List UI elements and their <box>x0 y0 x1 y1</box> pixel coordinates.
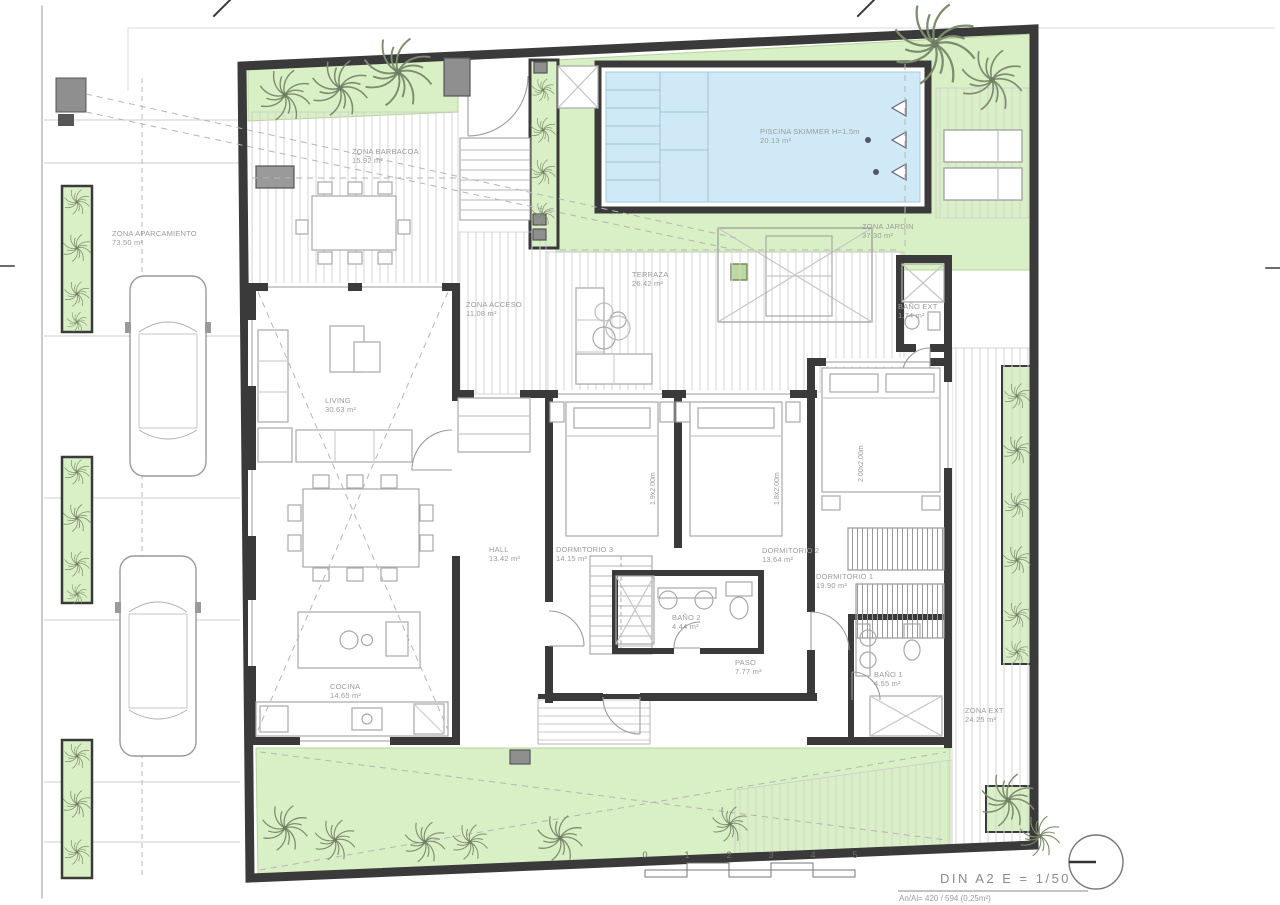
room-label-zona-ext: ZONA EXT 24.25 m² <box>965 706 1004 724</box>
exterior-bathroom-fixtures <box>902 264 944 330</box>
room-area: 26.42 m² <box>632 279 668 288</box>
room-area: 14.15 m² <box>556 554 613 563</box>
room-area: 4.55 m² <box>874 679 903 688</box>
room-name: PASO <box>735 658 762 667</box>
hall-closet <box>458 398 530 452</box>
room-area: 1.74 m² <box>898 311 938 320</box>
room-name: LIVING <box>325 396 356 405</box>
room-label-terraza: TERRAZA 26.42 m² <box>632 270 668 288</box>
left-planter <box>62 740 92 878</box>
room-name: DORMITORIO 1 <box>816 572 873 581</box>
room-label-barbacoa: ZONA BARBACOA 15.92 m² <box>352 147 419 165</box>
bed-dimension-label: 1.9x2.00m <box>650 472 657 505</box>
bed-dormitorio-2 <box>676 402 800 536</box>
room-name: COCINA <box>330 682 361 691</box>
room-label-jardin: ZONA JARDIN 37.30 m² <box>862 222 914 240</box>
scale-bar <box>645 863 855 877</box>
scale-tick: 3 <box>765 850 777 860</box>
room-area: 15.92 m² <box>352 156 419 165</box>
kitchen-island <box>298 612 420 668</box>
room-area: 11.08 m² <box>466 309 522 318</box>
room-name: DORMITORIO 2 <box>762 546 819 555</box>
pool-skimmer-dot <box>865 137 871 143</box>
room-name: DORMITORIO 3 <box>556 545 613 554</box>
gate-pillar <box>56 78 86 112</box>
room-label-dormitorio-2: DORMITORIO 2 13.64 m² <box>762 546 819 564</box>
scale-tick: 1 <box>681 850 693 860</box>
room-area: 13.64 m² <box>762 555 819 564</box>
room-label-bano-ext: BAÑO EXT 1.74 m² <box>898 302 938 320</box>
room-area: 73.50 m² <box>112 238 197 247</box>
bed-dormitorio-1 <box>822 368 940 510</box>
room-name: HALL <box>489 545 520 554</box>
room-area: 30.63 m² <box>325 405 356 414</box>
sheet-size-label: An/Al= 420 / 594 (0.25m²) <box>899 894 991 903</box>
floor-plan-drawing <box>0 0 1280 905</box>
bed-dormitorio-3 <box>550 402 674 536</box>
outdoor-shower <box>558 66 598 108</box>
room-label-hall: HALL 13.42 m² <box>489 545 520 563</box>
room-label-cocina: COCINA 14.65 m² <box>330 682 361 700</box>
room-name: ZONA EXT <box>965 706 1004 715</box>
architectural-floor-plan: ZONA APARCAMIENTO 73.50 m² ZONA BARBACOA… <box>0 0 1280 905</box>
room-name: BAÑO EXT <box>898 302 938 311</box>
scale-tick: 2 <box>723 850 735 860</box>
room-area: 14.65 m² <box>330 691 361 700</box>
wardrobe <box>848 528 944 570</box>
room-label-dormitorio-3: DORMITORIO 3 14.15 m² <box>556 545 613 563</box>
room-label-aparcamiento: ZONA APARCAMIENTO 73.50 m² <box>112 229 197 247</box>
basement-stairs <box>538 698 650 744</box>
room-label-living: LIVING 30.63 m² <box>325 396 356 414</box>
room-label-paso: PASO 7.77 m² <box>735 658 762 676</box>
room-area: 20.13 m² <box>760 136 860 145</box>
gate-post <box>58 114 74 126</box>
scale-tick: 4 <box>807 850 819 860</box>
car-icon <box>125 276 211 476</box>
room-name: ZONA JARDIN <box>862 222 914 231</box>
bbq-counter <box>256 166 294 188</box>
room-label-acceso: ZONA ACCESO 11.08 m² <box>466 300 522 318</box>
room-name: ZONA BARBACOA <box>352 147 419 156</box>
scale-tick: 5 <box>849 850 861 860</box>
scale-tick: 0 <box>639 850 651 860</box>
entry-pillar <box>444 58 470 96</box>
room-name: ZONA ACCESO <box>466 300 522 309</box>
bed-dimension-label: 1.8x2.00m <box>774 472 781 505</box>
east-deck <box>952 348 1034 848</box>
room-label-piscina: PISCINA SKIMMER H=1.5m 20.13 m² <box>760 127 860 145</box>
room-name: TERRAZA <box>632 270 668 279</box>
room-name: BAÑO 1 <box>874 670 903 679</box>
room-area: 13.42 m² <box>489 554 520 563</box>
room-area: 7.77 m² <box>735 667 762 676</box>
room-name: ZONA APARCAMIENTO <box>112 229 197 238</box>
room-label-dormitorio-1: DORMITORIO 1 19.90 m² <box>816 572 873 590</box>
pool-skimmer-dot <box>873 169 879 175</box>
room-area: 4.44 m² <box>672 622 701 631</box>
room-area: 37.30 m² <box>862 231 914 240</box>
room-label-bano-1: BAÑO 1 4.55 m² <box>874 670 903 688</box>
room-area: 24.25 m² <box>965 715 1004 724</box>
room-area: 19.90 m² <box>816 581 873 590</box>
sheet-format-label: DIN A2 E = 1/50 <box>903 871 1108 886</box>
car-icon <box>115 556 201 756</box>
room-label-bano-2: BAÑO 2 4.44 m² <box>672 613 701 631</box>
room-name: PISCINA SKIMMER H=1.5m <box>760 127 860 136</box>
kitchen-counter <box>256 702 448 736</box>
bed-dimension-label: 2.00x2.00m <box>858 445 865 482</box>
room-name: BAÑO 2 <box>672 613 701 622</box>
